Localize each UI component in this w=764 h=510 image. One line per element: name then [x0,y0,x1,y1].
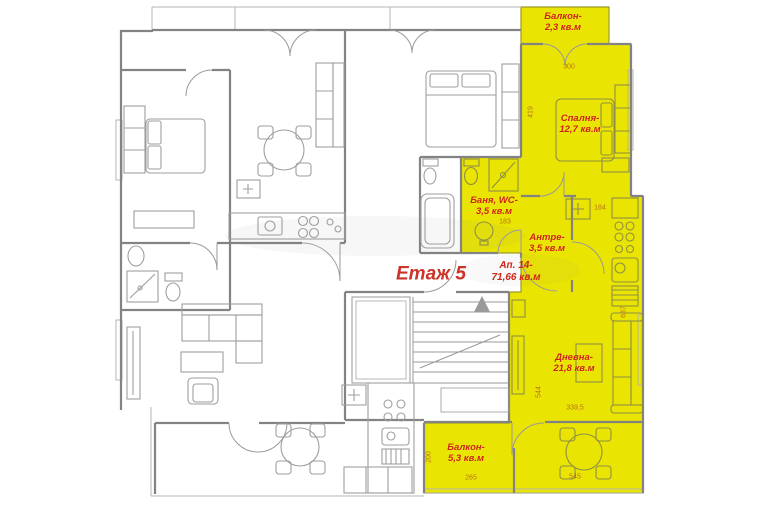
dim-637: 637 [621,306,628,318]
staircase [352,296,509,412]
room-name: Баня, WC- [470,195,518,206]
floor-plan-drawing [0,0,764,510]
room-label-bath: Баня, WC- 3,5 кв.м [470,195,518,217]
room-area: 2,3 кв.м [544,22,582,33]
room-label-living: Дневна- 21,8 кв.м [553,352,594,374]
dim-265: 265 [465,475,477,482]
room-name: Балкон- [544,11,582,22]
apartment-label: Ап. 14- 71,66 кв.м [491,260,540,284]
room-label-bedroom: Спалня- 12,7 кв.м [559,113,600,135]
dim-183: 183 [499,219,511,226]
room-label-antre: Антре- 3,5 кв.м [529,232,565,254]
dim-545: 545 [569,474,581,481]
dim-339-5: 339,5 [566,405,584,412]
room-name: Дневна- [553,352,594,363]
dim-200: 200 [426,451,433,463]
room-name: Спалня- [559,113,600,124]
room-label-balcony-top: Балкон- 2,3 кв.м [544,11,582,33]
floor-label: Етаж 5 [396,265,466,284]
room-area: 21,8 кв.м [553,363,594,374]
room-area: 12,7 кв.м [559,124,600,135]
room-area: 5,3 кв.м [447,453,485,464]
apartment-number: Ап. 14- [491,260,540,272]
room-area: 3,5 кв.м [529,243,565,254]
floor-plan-page: Балкон- 2,3 кв.м Спалня- 12,7 кв.м Баня,… [0,0,764,510]
dim-544: 544 [536,386,543,398]
room-name: Антре- [529,232,565,243]
room-area: 3,5 кв.м [470,206,518,217]
dim-419: 419 [528,106,535,118]
room-name: Балкон- [447,442,485,453]
dim-300: 300 [563,64,575,71]
dim-184: 184 [594,205,606,212]
room-label-balcony-bottom: Балкон- 5,3 кв.м [447,442,485,464]
apartment-area: 71,66 кв.м [491,272,540,284]
